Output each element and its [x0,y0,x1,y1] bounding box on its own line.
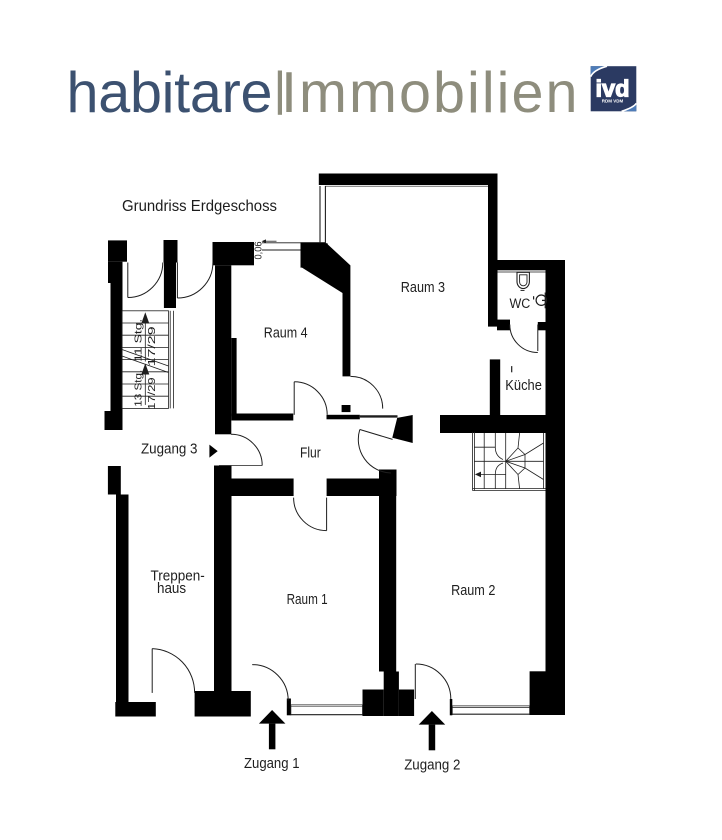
svg-text:13 Stg.: 13 Stg. [133,370,145,407]
svg-text:habitare: habitare [67,61,273,125]
svg-text:Raum 2: Raum 2 [451,582,495,599]
svg-text:17/29: 17/29 [146,377,158,410]
svg-text:Flur: Flur [300,445,321,462]
svg-text:17/29: 17/29 [146,326,158,366]
svg-text:Grundriss Erdgeschoss: Grundriss Erdgeschoss [122,198,277,215]
svg-text:WC: WC [510,296,531,311]
svg-text:11 Stg.: 11 Stg. [133,319,145,362]
svg-text:Zugang 1: Zugang 1 [244,755,300,772]
svg-text:Zugang 2: Zugang 2 [404,757,460,774]
svg-text:Raum 4: Raum 4 [264,325,308,342]
svg-text:haus: haus [157,580,186,597]
svg-text:RDM VDM: RDM VDM [602,99,624,104]
svg-text:Küche: Küche [505,377,542,394]
svg-text:ivd: ivd [596,75,630,101]
svg-text:Raum 3: Raum 3 [401,279,445,296]
svg-text:Immobilien: Immobilien [281,61,578,125]
svg-text:Raum 1: Raum 1 [287,591,328,608]
svg-text:0,06: 0,06 [254,241,265,259]
svg-text:Zugang 3: Zugang 3 [141,441,198,458]
